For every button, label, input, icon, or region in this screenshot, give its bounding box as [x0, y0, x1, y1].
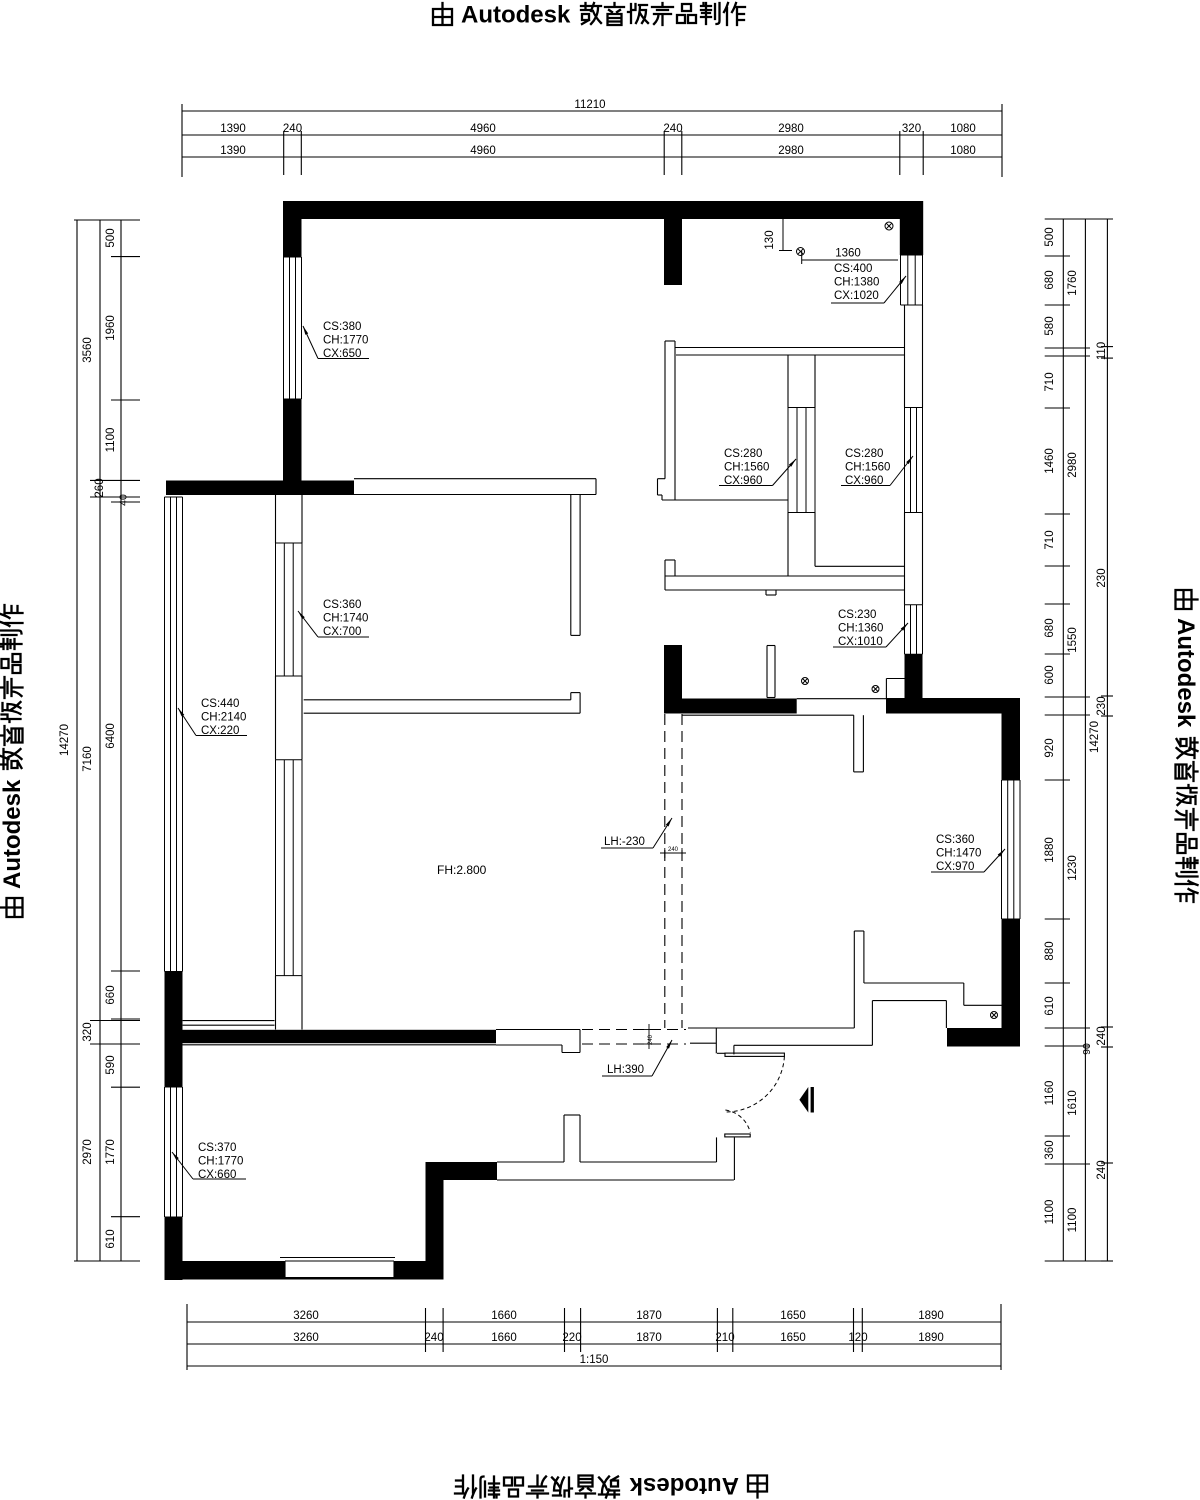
svg-text:240: 240 [668, 847, 679, 853]
svg-text:CX:1010: CX:1010 [838, 636, 883, 648]
svg-text:CS:370: CS:370 [198, 1142, 236, 1154]
svg-text:1550: 1550 [1067, 627, 1079, 653]
svg-text:3260: 3260 [293, 1310, 319, 1322]
svg-text:CX:700: CX:700 [323, 626, 361, 638]
svg-text:6400: 6400 [105, 723, 117, 749]
svg-text:1100: 1100 [105, 428, 117, 453]
svg-text:320: 320 [902, 123, 921, 135]
svg-text:230: 230 [1096, 568, 1108, 587]
svg-text:500: 500 [105, 228, 117, 247]
svg-text:LH:390: LH:390 [607, 1064, 644, 1076]
svg-text:1660: 1660 [491, 1332, 517, 1344]
svg-text:CH:1770: CH:1770 [323, 335, 368, 347]
svg-text:240: 240 [283, 123, 302, 135]
svg-text:2980: 2980 [1067, 452, 1079, 478]
svg-text:500: 500 [1044, 227, 1056, 246]
svg-text:40: 40 [118, 494, 130, 506]
svg-text:1100: 1100 [1067, 1208, 1079, 1233]
svg-text:240: 240 [1096, 1160, 1108, 1179]
svg-text:1080: 1080 [950, 123, 976, 135]
svg-text:CX:1020: CX:1020 [834, 290, 879, 302]
svg-text:1360: 1360 [835, 248, 861, 260]
svg-text:14270: 14270 [1089, 721, 1101, 753]
svg-text:CS:400: CS:400 [834, 263, 872, 275]
svg-text:1650: 1650 [780, 1310, 806, 1322]
svg-text:CX:970: CX:970 [936, 861, 974, 873]
svg-text:2980: 2980 [778, 145, 804, 157]
svg-text:610: 610 [1044, 996, 1056, 1015]
svg-text:680: 680 [1044, 618, 1056, 637]
svg-text:3260: 3260 [293, 1332, 319, 1344]
svg-text:360: 360 [1044, 1140, 1056, 1159]
svg-text:920: 920 [1044, 738, 1056, 757]
svg-text:230: 230 [1096, 696, 1108, 715]
svg-text:CH:1740: CH:1740 [323, 613, 368, 625]
svg-text:1100: 1100 [1044, 1200, 1056, 1225]
svg-text:1:150: 1:150 [580, 1354, 609, 1366]
svg-text:CH:1560: CH:1560 [845, 462, 890, 474]
svg-text:1460: 1460 [1044, 448, 1056, 474]
svg-text:CH:1380: CH:1380 [834, 277, 879, 289]
svg-text:11210: 11210 [574, 99, 605, 111]
svg-text:1610: 1610 [1067, 1090, 1079, 1116]
svg-text:120: 120 [848, 1332, 867, 1344]
svg-text:320: 320 [82, 1022, 94, 1041]
svg-text:4960: 4960 [470, 123, 496, 135]
svg-text:CH:1770: CH:1770 [198, 1156, 243, 1168]
svg-text:1390: 1390 [220, 145, 246, 157]
svg-text:CS:380: CS:380 [323, 321, 361, 333]
svg-text:1660: 1660 [491, 1310, 517, 1322]
svg-text:CH:1360: CH:1360 [838, 623, 883, 635]
svg-text:240: 240 [663, 123, 682, 135]
svg-text:CS:440: CS:440 [201, 698, 239, 710]
svg-text:660: 660 [105, 985, 117, 1004]
svg-text:710: 710 [1044, 530, 1056, 549]
svg-text:1890: 1890 [918, 1332, 944, 1344]
svg-text:610: 610 [105, 1229, 117, 1248]
svg-text:1160: 1160 [1044, 1081, 1056, 1106]
svg-text:1080: 1080 [950, 145, 976, 157]
svg-text:7160: 7160 [82, 746, 94, 772]
svg-text:CH:1560: CH:1560 [724, 462, 769, 474]
svg-text:CS:280: CS:280 [845, 448, 883, 460]
svg-text:880: 880 [1044, 941, 1056, 960]
svg-text:CH:1470: CH:1470 [936, 848, 981, 860]
svg-text:CS:360: CS:360 [936, 834, 974, 846]
svg-text:1770: 1770 [105, 1139, 117, 1165]
svg-text:CS:230: CS:230 [838, 609, 876, 621]
svg-text:240: 240 [1096, 1026, 1108, 1045]
svg-text:130: 130 [764, 230, 776, 249]
svg-text:1390: 1390 [220, 123, 246, 135]
svg-text:1230: 1230 [1067, 855, 1079, 881]
svg-text:14270: 14270 [59, 724, 71, 756]
svg-text:4960: 4960 [470, 145, 496, 157]
svg-text:240: 240 [648, 1034, 654, 1045]
svg-text:1880: 1880 [1044, 837, 1056, 863]
svg-text:FH:2.800: FH:2.800 [437, 863, 487, 877]
svg-text:680: 680 [1044, 270, 1056, 289]
svg-text:LH:-230: LH:-230 [604, 836, 645, 848]
svg-text:CH:2140: CH:2140 [201, 712, 246, 724]
svg-text:110: 110 [1096, 342, 1108, 360]
svg-text:1760: 1760 [1067, 270, 1079, 296]
svg-text:220: 220 [562, 1332, 581, 1344]
svg-text:600: 600 [1044, 665, 1056, 684]
svg-text:210: 210 [715, 1332, 734, 1344]
svg-text:1870: 1870 [636, 1332, 662, 1344]
svg-text:580: 580 [1044, 316, 1056, 335]
svg-text:1650: 1650 [780, 1332, 806, 1344]
svg-text:1890: 1890 [918, 1310, 944, 1322]
svg-text:2970: 2970 [82, 1139, 94, 1165]
svg-text:240: 240 [424, 1332, 443, 1344]
svg-text:2980: 2980 [778, 123, 804, 135]
svg-text:260: 260 [94, 478, 106, 497]
svg-text:590: 590 [105, 1055, 117, 1074]
svg-text:CS:280: CS:280 [724, 448, 762, 460]
svg-text:1960: 1960 [105, 315, 117, 341]
svg-text:CS:360: CS:360 [323, 599, 361, 611]
svg-text:1870: 1870 [636, 1310, 662, 1322]
svg-text:90: 90 [1081, 1043, 1093, 1055]
svg-text:3560: 3560 [82, 337, 94, 363]
svg-text:710: 710 [1044, 372, 1056, 391]
